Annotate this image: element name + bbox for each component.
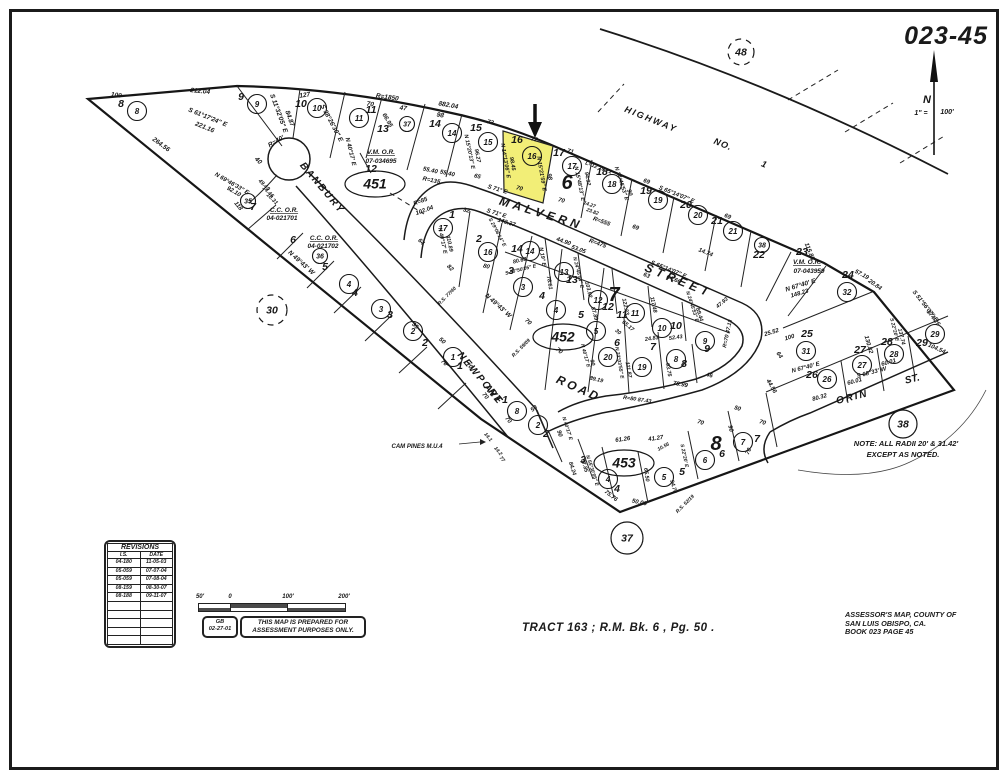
lot-number: 7: [650, 341, 657, 353]
map-annotation: 69: [631, 224, 640, 232]
map-annotation: R=85: [413, 197, 429, 208]
scale-label: 200': [338, 594, 349, 600]
assessor-credit: ASSESSOR'S MAP, COUNTY OF SAN LUIS OBISP…: [845, 611, 995, 637]
map-annotation: 30: [613, 328, 622, 337]
map-annotation: N 40°17' E: [344, 137, 357, 167]
stamp-text-box: THIS MAP IS PREPARED FOR ASSESSMENT PURP…: [240, 616, 366, 638]
map-annotation: 84.24: [567, 461, 577, 476]
lot-number: 16: [511, 134, 523, 146]
parcel-number: 11: [631, 309, 640, 318]
parcel-number: 36: [316, 253, 324, 260]
lot-number: 8: [118, 98, 124, 110]
map-annotation: R=40': [267, 134, 286, 149]
map-annotation: 44.56: [764, 378, 778, 395]
map-annotation: EXCEPT AS NOTED.: [867, 450, 940, 459]
revision-row: [107, 602, 173, 611]
lot-number: 1: [457, 360, 463, 372]
map-annotation: 70: [557, 197, 566, 205]
parcel-number: 14: [448, 129, 457, 138]
parcel-number: 2: [535, 421, 541, 430]
lot-number: 7: [754, 433, 761, 445]
scale-label: 100': [282, 594, 293, 600]
revisions-header: I.S. DATE: [107, 552, 173, 559]
lot-number: 2: [421, 337, 428, 349]
parcel-number: 1: [451, 353, 456, 362]
map-annotation: R=135: [422, 176, 441, 186]
map-annotation: 65: [473, 173, 482, 181]
map-annotation: 70: [758, 419, 767, 427]
lot-number: 4: [538, 290, 545, 302]
revision-row: [107, 611, 173, 620]
parcel-number: 6: [703, 456, 708, 465]
tract-number: 453: [611, 455, 636, 471]
stamp-initials-box: GB 02-27-01: [202, 616, 238, 638]
lot-number: 24: [841, 269, 854, 281]
tract-number: 452: [550, 329, 575, 345]
parcel-number: 14: [526, 247, 535, 256]
parcel-number: 35: [244, 198, 252, 205]
parcel-number: 2: [410, 327, 416, 336]
lot-number: 28: [880, 336, 893, 348]
map-annotation: 143.37: [497, 217, 517, 228]
map-annotation: S 22°20' E: [679, 444, 690, 469]
map-annotation: 73: [486, 119, 494, 126]
lot-number: 5: [578, 309, 584, 321]
lot-number: 6: [290, 234, 296, 246]
tract-number: 451: [362, 176, 387, 192]
parcel-number: 4: [605, 475, 611, 484]
parcel-number: 17: [568, 162, 577, 171]
map-annotation: N 49°43' W: [483, 291, 514, 320]
revision-row: 08-15908-30-07: [107, 585, 173, 594]
map-annotation: V.M. O.R.: [793, 259, 821, 266]
lot-number: 3: [508, 265, 514, 277]
map-annotation: 98: [545, 173, 552, 181]
parcel-number: 13: [560, 268, 569, 277]
parcel-number: 8: [135, 107, 140, 116]
parcel-number: 19: [654, 196, 663, 205]
lot-number: 14: [429, 118, 441, 130]
parcel-number: 5: [594, 327, 599, 336]
lot-number: 10: [670, 320, 682, 332]
stamp-line1: THIS MAP IS PREPARED FOR: [244, 619, 362, 627]
map-annotation: R.S. 59/09: [511, 338, 532, 359]
map-annotation: 50: [733, 405, 742, 413]
map-annotation: 04-021701: [266, 215, 297, 222]
parcel-number: 28: [889, 350, 899, 359]
stamp-initials: GB: [205, 619, 235, 626]
map-annotation: C.C. O.R.: [310, 235, 338, 242]
map-annotation: 104.54: [927, 343, 947, 356]
revision-row: 05-05907-08-04: [107, 576, 173, 585]
map-annotation: 70: [554, 347, 563, 356]
parcel-number: 10: [313, 104, 322, 113]
scale-bar: 50' 0 100' 200': [196, 594, 348, 616]
map-annotation: 882.04: [438, 100, 459, 110]
revision-row: [107, 619, 173, 628]
map-annotation: 64: [774, 351, 783, 360]
lot-number: 25: [800, 328, 813, 340]
parcel-number: 15: [484, 138, 493, 147]
reference-number: 37: [621, 533, 634, 545]
tract-reference: TRACT 163 ; R.M. Bk. 6 , Pg. 50 .: [522, 622, 752, 634]
parcel-number: 3: [379, 305, 384, 314]
parcel-number: 11: [355, 114, 364, 123]
lot-number: 23: [795, 246, 808, 258]
parcel-number: 20: [693, 211, 703, 220]
map-annotation: R=475: [588, 238, 607, 250]
street-label: ORIN: [835, 388, 870, 407]
map-annotation: 07-043959: [793, 268, 824, 275]
north-arrow-icon: [930, 50, 938, 155]
lot-number: 6: [614, 337, 620, 349]
map-annotation: NOTE: ALL RADII 20' & 31.42': [854, 439, 959, 448]
assessment-stamp: GB 02-27-01 THIS MAP IS PREPARED FOR ASS…: [202, 616, 366, 638]
parcel-number: 8: [515, 407, 520, 416]
revisions-rows: 04-18011-05-0305-05907-07-0405-05907-08-…: [107, 559, 173, 645]
parcel-number: 9: [703, 337, 708, 346]
parcel-number: 16: [528, 152, 537, 161]
map-annotation: 78.61: [545, 276, 553, 291]
parcel-number: 32: [843, 288, 852, 297]
map-annotation: 23.82: [584, 207, 599, 217]
map-annotation: 100: [784, 334, 796, 343]
parcel-number: 8: [674, 355, 679, 364]
map-annotation: 90: [555, 430, 563, 439]
scale-bar-graphic: [198, 603, 346, 612]
lot-number: 12: [365, 163, 377, 175]
scale-label: 50': [196, 594, 204, 600]
parcel-number: 18: [608, 180, 617, 189]
map-annotation: N: [923, 94, 932, 106]
revisions-table: REVISIONS I.S. DATE 04-18011-05-0305-059…: [104, 540, 176, 648]
map-annotation: 14.74: [697, 247, 714, 258]
map-annotation: 47.93: [714, 297, 729, 311]
reference-number: 30: [266, 305, 278, 317]
map-annotation: R.S. 52/19: [675, 494, 696, 515]
map-annotation: 25.52: [763, 328, 781, 339]
map-annotation: CAM PINES M.U.4: [391, 444, 443, 450]
map-annotation: 80: [482, 263, 491, 271]
lot-number: 9: [238, 91, 244, 103]
assessor-line: BOOK 023 PAGE 45: [845, 628, 995, 637]
stamp-line2: ASSESSMENT PURPOSES ONLY.: [244, 627, 362, 635]
map-annotation: 82: [445, 264, 454, 273]
map-annotation: R=70 47.13: [722, 319, 734, 348]
map-annotation: 212.04: [189, 87, 211, 96]
parcel-number: 29: [930, 330, 940, 339]
map-annotation: R=555: [592, 216, 611, 228]
street-label: NO.: [712, 136, 733, 152]
revisions-col-is: I.S.: [108, 552, 141, 558]
lot-number: 5: [679, 466, 685, 478]
lot-number: 10: [295, 98, 307, 110]
revision-row: 08-18809-11-07: [107, 593, 173, 602]
parcel-number: 21: [728, 227, 738, 236]
reference-number: 48: [734, 47, 747, 59]
lot-number: 29: [915, 337, 928, 349]
parcel-number: 37: [403, 121, 412, 128]
sheet-number: 023-45: [862, 22, 988, 51]
map-annotation: 70: [523, 318, 532, 327]
highlight-arrow-icon: [528, 104, 542, 138]
lot-number: 4: [613, 483, 620, 495]
block-number: 7: [608, 284, 620, 306]
parcel-number: 9: [255, 100, 260, 109]
parcel-number: 10: [658, 324, 667, 333]
parcel-number: 20: [603, 353, 613, 362]
map-annotation: R=80 87.43: [623, 395, 652, 405]
map-annotation: V.M. O.R.: [367, 149, 395, 156]
lot-number: 1: [502, 394, 508, 406]
lot-number: 13: [377, 123, 389, 135]
map-annotation: 65.17: [620, 320, 635, 334]
map-annotation: N 40°17' E: [560, 416, 573, 441]
reference-number: 38: [897, 419, 909, 431]
lot-number: 15: [470, 122, 482, 134]
parcel-number: 17: [439, 224, 448, 233]
parcel-number: 4: [553, 306, 559, 315]
map-annotation: 70: [503, 416, 512, 425]
map-annotation: 55.40: [439, 170, 456, 179]
lot-number: 26: [805, 369, 818, 381]
parcel-number: 7: [741, 438, 746, 447]
revisions-col-date: DATE: [141, 552, 173, 558]
map-annotation: 52.43: [669, 334, 683, 342]
parcel-number: 12: [594, 296, 603, 305]
street-label: HIGHWAY: [623, 104, 679, 134]
map-annotation: 46: [704, 372, 713, 380]
map-annotation: 70: [696, 419, 705, 427]
revision-row: 05-05907-07-04: [107, 568, 173, 577]
parcel-number: 4: [346, 280, 352, 289]
map-annotation: R.S. 77/40: [437, 286, 458, 307]
map-annotation: 57.19: [853, 269, 870, 282]
revision-row: [107, 636, 173, 645]
assessor-map-page: 100212.04S 61°17'24" E221.16264.56127S 1…: [0, 0, 1008, 779]
parcel-number: 3: [521, 283, 526, 292]
map-annotation: 40: [252, 155, 263, 166]
map-annotation: 102.04: [415, 205, 435, 217]
street-label: 1: [760, 159, 768, 170]
map-annotation: 78.99: [672, 381, 688, 390]
map-annotation: 50: [437, 337, 446, 346]
block-number: 8: [710, 433, 722, 455]
map-annotation: 41.27: [647, 435, 664, 443]
map-annotation: 118: [232, 201, 243, 213]
parcel-number: 26: [822, 375, 832, 384]
lot-number: 27: [853, 344, 867, 356]
map-annotation: N 15°48'13" E: [572, 166, 585, 202]
lot-number: 2: [475, 233, 482, 245]
map-annotation: 47: [398, 104, 408, 112]
map-annotation: 10.31: [265, 192, 279, 206]
revision-row: 04-18011-05-03: [107, 559, 173, 568]
street-label: STREET: [643, 260, 714, 300]
map-annotation: 20.84: [866, 278, 883, 292]
lot-number: 17: [553, 147, 566, 159]
cam-pines-arrow-icon: [459, 439, 486, 445]
parcel-number: 16: [484, 248, 493, 257]
lot-number: 1: [449, 209, 455, 221]
map-annotation: C.C. O.R.: [270, 207, 298, 214]
map-annotation: 80.32: [812, 393, 829, 403]
map-annotation: 61.26: [615, 436, 631, 444]
map-annotation: 60.01: [847, 377, 864, 387]
parcel-number: 19: [638, 363, 647, 372]
street-label: BANBURY: [297, 160, 346, 216]
parcel-number: 27: [857, 361, 867, 370]
parcel-number: 31: [802, 347, 811, 356]
lot-number: 3: [580, 454, 586, 466]
map-annotation: 89.19: [589, 375, 605, 384]
street-label: ST.: [904, 372, 921, 386]
map-annotation: 10.56: [657, 441, 671, 452]
parcel-number: 38: [758, 242, 766, 249]
revisions-title: REVISIONS: [107, 543, 173, 552]
parcel-map: 100212.04S 61°17'24" E221.16264.56127S 1…: [0, 0, 1008, 779]
map-annotation: 55.40: [422, 167, 439, 176]
map-annotation: 100': [940, 109, 954, 116]
lot-number: 22: [752, 249, 765, 261]
stamp-date: 02-27-01: [205, 626, 235, 633]
lot-number: 21: [710, 215, 723, 227]
parcel-number: 5: [662, 473, 667, 482]
map-annotation: 94.92: [583, 171, 592, 186]
map-annotation: 1" =: [914, 110, 927, 117]
revision-row: [107, 628, 173, 637]
scale-label: 0: [228, 594, 231, 600]
